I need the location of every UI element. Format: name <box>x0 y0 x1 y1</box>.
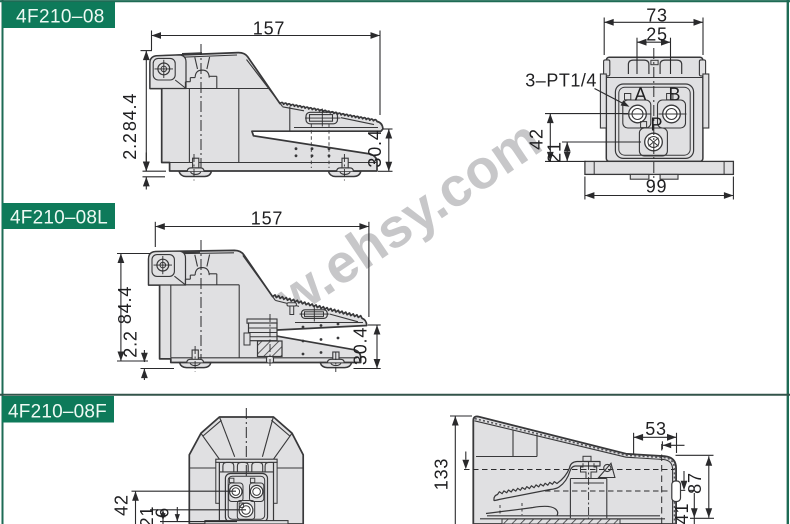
svg-text:4F210–08F: 4F210–08F <box>8 402 107 423</box>
svg-text:157: 157 <box>253 18 285 38</box>
svg-text:2.2: 2.2 <box>121 330 141 357</box>
svg-text:4F210–08: 4F210–08 <box>16 7 105 28</box>
svg-text:A: A <box>634 85 646 105</box>
svg-text:42: 42 <box>527 128 547 150</box>
svg-text:P: P <box>650 115 662 135</box>
svg-text:41: 41 <box>672 503 692 524</box>
svg-text:4F210–08L: 4F210–08L <box>10 208 108 229</box>
svg-text:30.4: 30.4 <box>351 327 371 365</box>
svg-text:3–PT1/4: 3–PT1/4 <box>525 71 597 91</box>
svg-text:53: 53 <box>645 419 667 439</box>
svg-text:99: 99 <box>646 177 668 197</box>
svg-text:84.4: 84.4 <box>115 286 135 324</box>
svg-text:87: 87 <box>685 472 705 494</box>
svg-text:157: 157 <box>251 209 283 229</box>
svg-text:133: 133 <box>432 458 452 490</box>
svg-text:21: 21 <box>545 141 565 163</box>
svg-text:6: 6 <box>153 507 173 518</box>
svg-text:2.2: 2.2 <box>120 132 140 159</box>
svg-text:84.4: 84.4 <box>120 93 140 131</box>
svg-text:73: 73 <box>646 5 668 25</box>
svg-text:42: 42 <box>112 494 132 516</box>
svg-text:25: 25 <box>646 25 668 45</box>
svg-text:30.4: 30.4 <box>365 129 385 167</box>
svg-text:B: B <box>668 85 680 105</box>
